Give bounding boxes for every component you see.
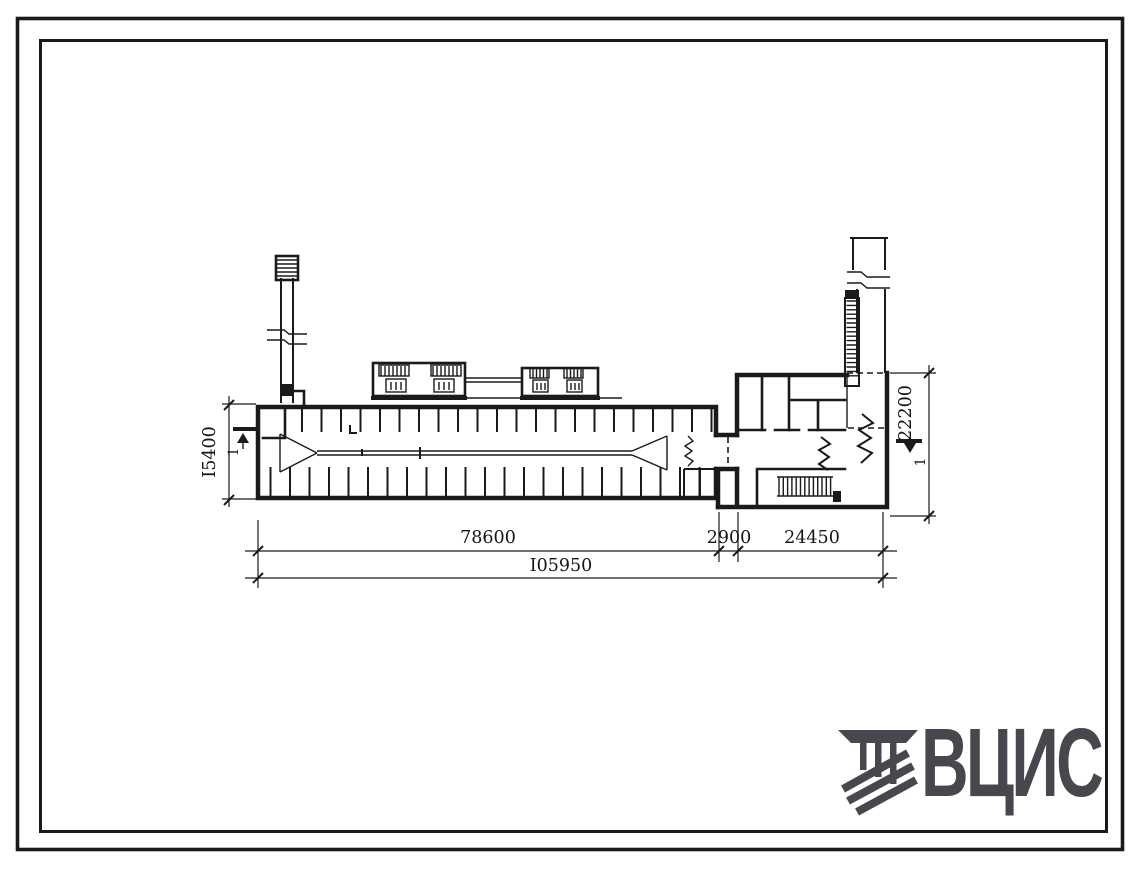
corner-room	[684, 469, 716, 496]
section-marker-left: 1	[226, 429, 259, 456]
stair-treads	[779, 477, 831, 496]
dim-label-span-left: 78600	[460, 528, 516, 548]
tower-break-lines	[847, 272, 890, 288]
roof-unit-a	[371, 363, 467, 398]
dim-label-span-right: 24450	[784, 528, 840, 548]
tower-break-lines	[267, 330, 307, 344]
roof-unit-b	[463, 368, 622, 398]
break-mark-large	[858, 414, 873, 463]
floor-plan	[258, 238, 890, 507]
dim-label-total-length: I05950	[530, 556, 593, 576]
section-label-right: 1	[913, 458, 929, 467]
hatched-beams-logo-icon	[838, 730, 918, 812]
main-hall	[258, 407, 716, 498]
central-trench	[280, 425, 667, 472]
dim-bottom-chain: 78600 2900 24450 I05950	[245, 512, 897, 588]
left-shaft-tower	[267, 256, 307, 404]
dim-label-span-link: 2900	[707, 528, 752, 548]
right-shaft-tower	[845, 238, 890, 428]
stairwell	[757, 469, 845, 505]
logo-wordmark: ВЦИС	[921, 714, 1101, 811]
stall-dividers-top	[302, 408, 712, 432]
section-marker-right: 1	[896, 437, 929, 466]
right-annex-block	[718, 373, 887, 507]
scanned-drawing-page: I5400 22200 78600 2900 24450 I05950 1	[0, 0, 1139, 869]
dim-label-annex-width: 22200	[896, 385, 916, 441]
section-label-left: 1	[226, 448, 242, 457]
break-mark-small	[819, 437, 830, 470]
stall-dividers-bottom	[271, 467, 700, 497]
dim-label-hall-width: I5400	[200, 426, 220, 477]
break-line	[685, 436, 693, 466]
link-section	[716, 435, 737, 507]
